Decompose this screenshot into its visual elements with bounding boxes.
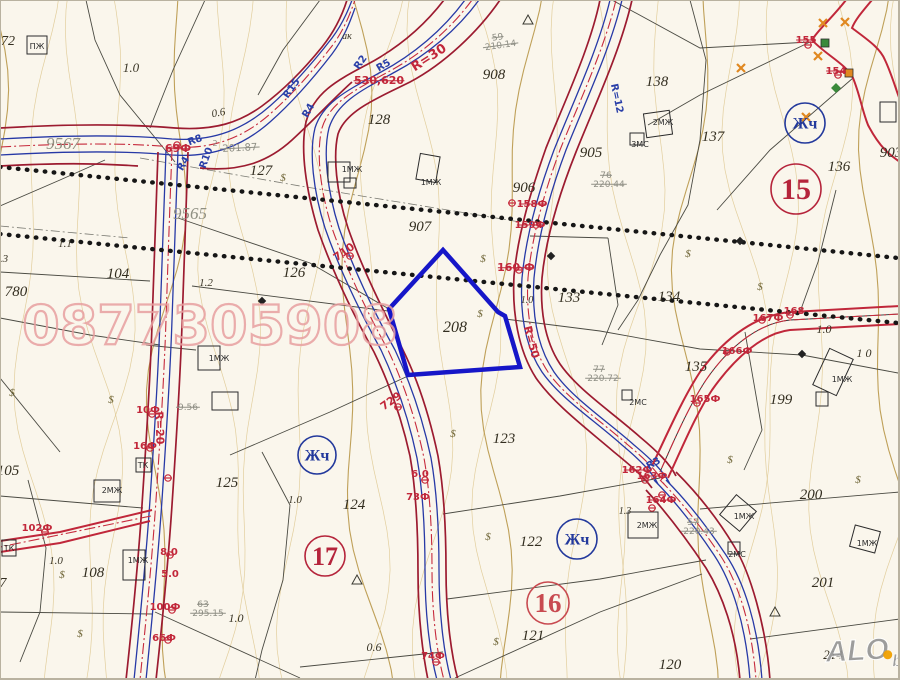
building-label: 2МЖ: [637, 521, 658, 530]
map-label: 1.0: [288, 494, 302, 506]
scrub-symbol: $: [480, 253, 486, 265]
map-label: 104: [107, 266, 130, 282]
map-label: 8.0: [160, 547, 178, 558]
building-label: 2МЖ: [102, 486, 123, 495]
scrub-symbol: $: [280, 172, 286, 184]
map-label: 9.56: [178, 403, 198, 413]
map-label: 120: [659, 657, 682, 673]
building-label: 1МЖ: [421, 178, 442, 187]
building-label: 3МС: [631, 140, 649, 149]
map-label: 9565: [173, 204, 207, 223]
map-label: 220.72: [587, 374, 619, 384]
map-label: 907: [409, 219, 433, 235]
map-label: ак: [342, 31, 352, 42]
map-label: 9567: [46, 134, 82, 153]
scrub-symbol: $: [77, 628, 83, 640]
map-label: 167Ф: [753, 313, 784, 324]
map-label: 122: [520, 534, 543, 550]
building-label: 1МЖ: [734, 512, 755, 521]
scrub-symbol: $: [855, 474, 861, 486]
map-label: 127: [250, 163, 274, 179]
scrub-symbol: $: [757, 281, 763, 293]
building-label: 1МЖ: [128, 556, 149, 565]
map-label: 121: [522, 628, 545, 644]
map-label: 1.0: [229, 611, 244, 625]
map-label: 908: [483, 67, 506, 83]
building-label: 1МЖ: [832, 375, 853, 384]
scrub-symbol: $: [477, 308, 483, 320]
cadastral-map-scan: ПЖ1МЖ1МЖ2МЖ3МС1МЖ2МЖ1МЖ2МЖ1МЖ2МС1МЖ1МЖ2М…: [0, 0, 900, 680]
building-label: 1МЖ: [857, 539, 878, 548]
map-label: 7: [0, 576, 8, 591]
map-label: 125: [216, 475, 239, 491]
map-label: 74Ф: [421, 651, 445, 662]
building-label: 2МС: [728, 550, 746, 559]
scrub-symbol: $: [450, 428, 456, 440]
map-label: 208: [443, 319, 467, 336]
map-label: 137: [702, 129, 726, 145]
map-label: 0.6: [367, 640, 382, 654]
building-label: 1МЖ: [342, 165, 363, 174]
building-label: ПЖ: [30, 42, 45, 51]
map-label: 1.3: [619, 506, 632, 517]
map-label: 66Ф: [152, 633, 176, 644]
map-label: 199: [770, 392, 793, 408]
building-label: 2МС: [629, 398, 647, 407]
green-square-marker: [821, 39, 829, 47]
map-label: 220.43: [683, 527, 715, 537]
map-label: 168: [784, 306, 805, 317]
map-label: 905: [580, 145, 603, 161]
map-label: 128: [368, 112, 391, 128]
scrub-symbol: $: [493, 636, 499, 648]
map-label: 201: [812, 575, 835, 591]
watermark-phone: 0877305908: [22, 294, 398, 357]
map-label: 1 0: [857, 346, 872, 360]
map-label: 1.0: [521, 295, 534, 306]
map-label: 906: [513, 180, 536, 196]
map-label: 108: [82, 565, 105, 581]
map-label: 295.15: [192, 609, 224, 619]
map-label: 100Ф: [150, 602, 181, 613]
map-label: 1.0: [49, 555, 63, 567]
circled-label: 16: [535, 588, 562, 618]
map-label: 2: [212, 139, 217, 148]
map-label: 134: [658, 289, 681, 305]
scrub-symbol: $: [685, 248, 691, 260]
scrub-symbol: $: [59, 569, 65, 581]
map-label: 133: [558, 290, 581, 306]
building-label: 2МЖ: [653, 118, 674, 127]
map-label: 10Ф: [136, 405, 160, 416]
map-label: 123: [493, 431, 516, 447]
map-label: 220.44: [593, 180, 625, 190]
scrub-symbol: $: [108, 394, 114, 406]
map-label: 6.0: [411, 469, 429, 480]
map-label: 903: [880, 145, 900, 161]
map-label: 124: [343, 497, 366, 513]
map-label: 1.2: [199, 277, 213, 289]
map-label: 138: [646, 74, 669, 90]
map-label: .3: [0, 253, 9, 265]
circled-label: Жч: [793, 115, 818, 132]
map-label: 1.0: [817, 322, 832, 336]
map-label: 102Ф: [22, 523, 53, 534]
map-label: 166Ф: [722, 346, 753, 357]
map-label: 16Ф: [133, 441, 157, 452]
circled-label: Жч: [305, 447, 330, 464]
scrub-symbol: $: [485, 531, 491, 543]
scrub-symbol: $: [727, 454, 733, 466]
map-label: R=20: [152, 411, 166, 445]
circled-label: Жч: [565, 531, 590, 548]
map-label: 1.0: [123, 60, 140, 75]
logo-text-main: ALO: [824, 633, 890, 669]
map-label: 5.0: [161, 569, 179, 580]
map-label: 0.6: [211, 106, 227, 120]
map-label: 72: [1, 34, 15, 49]
map-label: 1.1: [58, 238, 72, 250]
map-label: 136: [828, 159, 851, 175]
scrub-symbol: $: [9, 387, 15, 399]
map-label: 126: [283, 265, 306, 281]
map-canvas: ПЖ1МЖ1МЖ2МЖ3МС1МЖ2МЖ1МЖ2МЖ1МЖ2МС1МЖ1МЖ2М…: [0, 0, 900, 680]
building-label: ТК: [3, 544, 15, 553]
map-label: 200: [800, 487, 823, 503]
map-label: 165Ф: [690, 394, 721, 405]
circled-label: 17: [312, 542, 338, 571]
map-label: 135: [685, 359, 708, 375]
map-label: 105: [0, 463, 20, 479]
building-label: ТК: [137, 461, 149, 470]
circled-label: 15: [781, 173, 811, 206]
map-label: 73Ф: [406, 492, 430, 503]
